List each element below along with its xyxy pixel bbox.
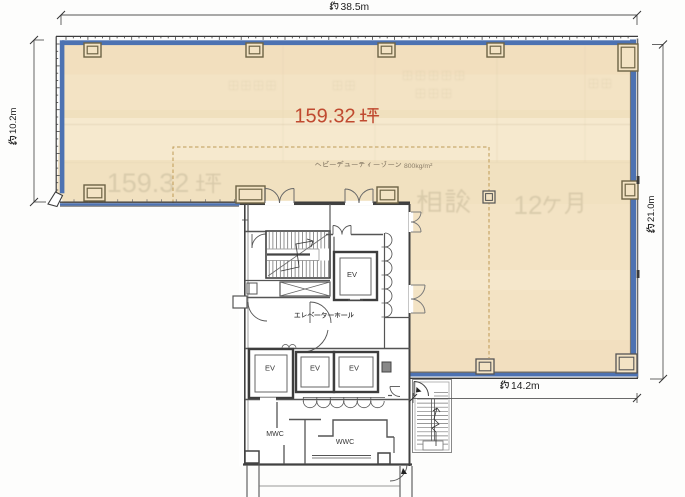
svg-text:WWC: WWC (336, 439, 354, 446)
svg-text:EV: EV (349, 364, 359, 373)
svg-text:MWC: MWC (266, 431, 284, 438)
svg-text:159.32: 159.32 (294, 106, 355, 128)
svg-text:38.5m: 38.5m (341, 2, 370, 13)
svg-text:12: 12 (514, 190, 543, 220)
svg-text:EV: EV (347, 270, 357, 279)
svg-text:159.32: 159.32 (107, 168, 190, 198)
svg-text:EV: EV (265, 364, 275, 373)
svg-text:14.2m: 14.2m (511, 381, 540, 392)
svg-text:800kg/m²: 800kg/m² (404, 163, 433, 170)
svg-text:EV: EV (310, 364, 320, 373)
svg-text:21.0m: 21.0m (646, 196, 657, 222)
svg-text:10.2m: 10.2m (8, 108, 19, 134)
